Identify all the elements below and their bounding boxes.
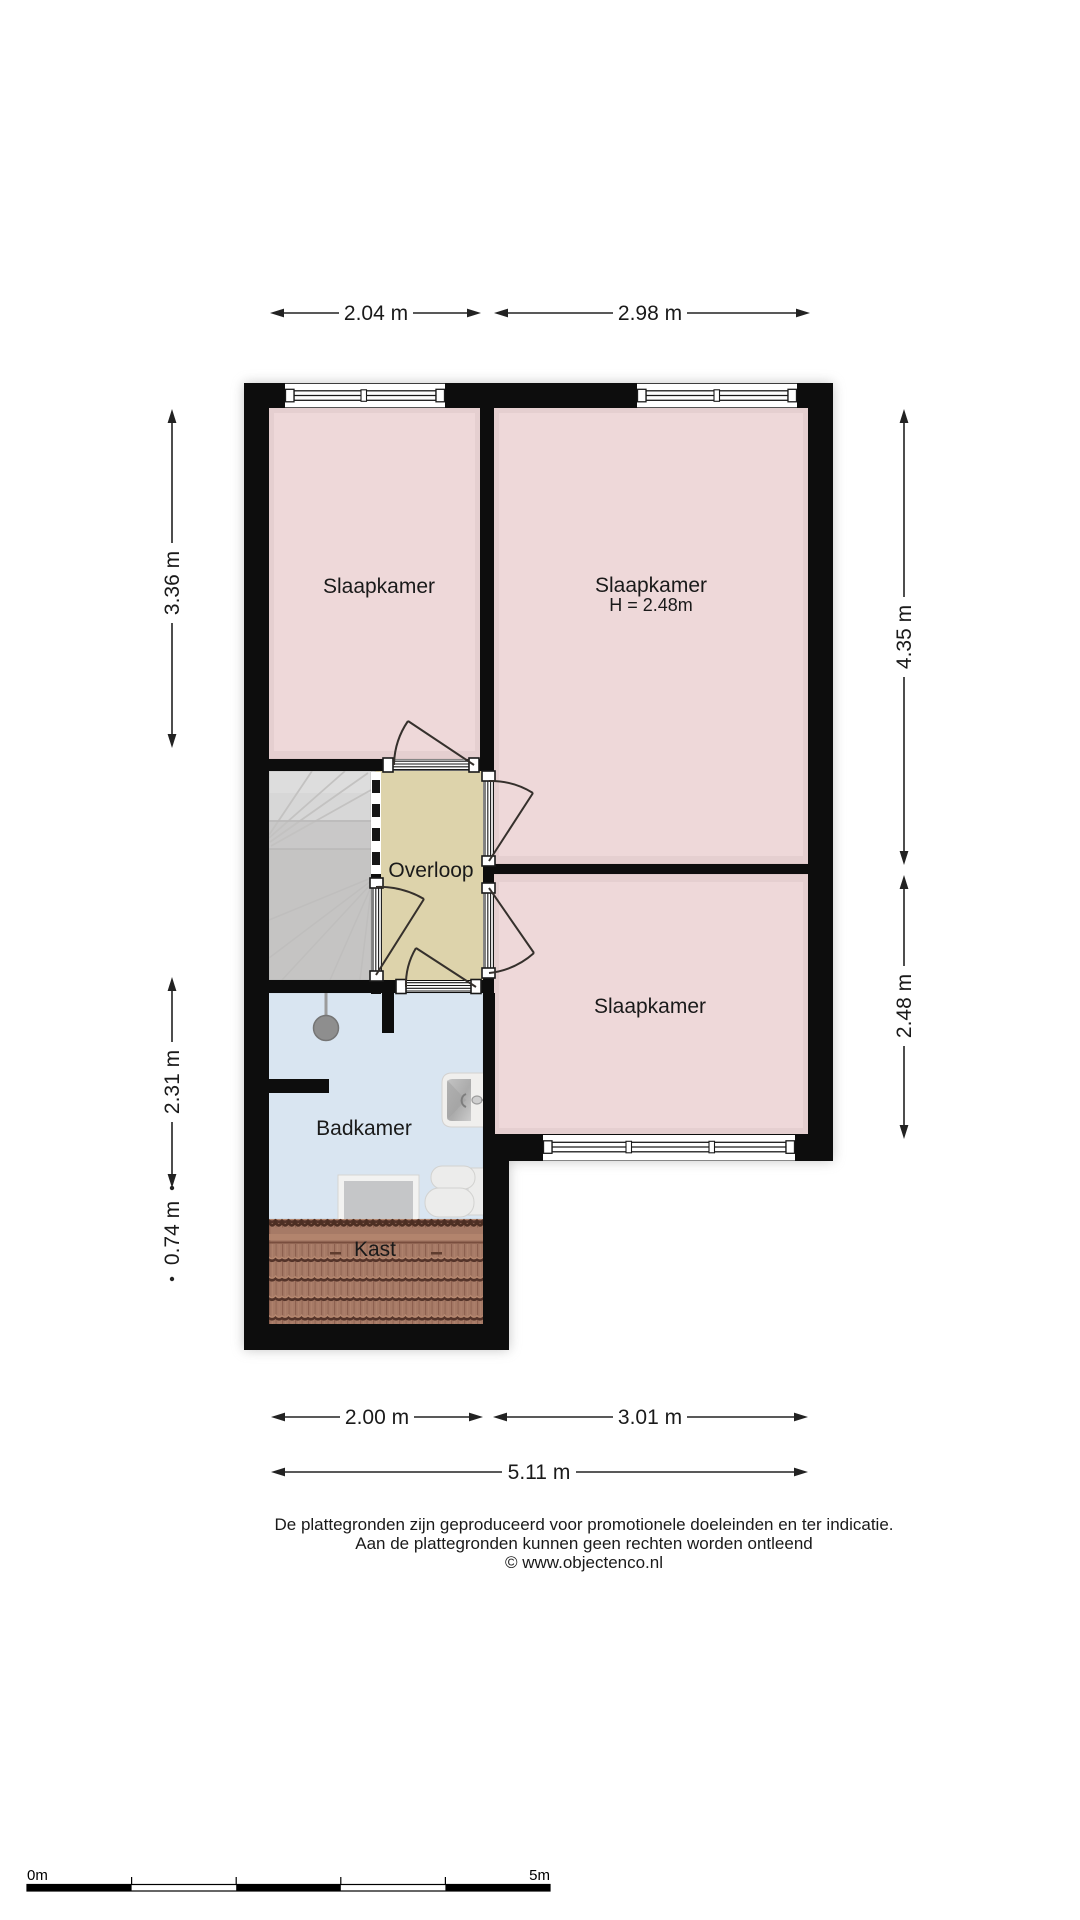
svg-text:Kast: Kast (354, 1238, 396, 1261)
svg-text:0.74 m: 0.74 m (161, 1201, 184, 1265)
svg-text:H = 2.48m: H = 2.48m (609, 595, 693, 615)
svg-text:5m: 5m (529, 1867, 550, 1884)
svg-text:2.48 m: 2.48 m (893, 974, 916, 1038)
svg-text:Badkamer: Badkamer (316, 1117, 412, 1140)
svg-text:2.98 m: 2.98 m (618, 302, 682, 325)
svg-text:Slaapkamer: Slaapkamer (323, 575, 435, 598)
svg-text:Aan de plattegronden kunnen ge: Aan de plattegronden kunnen geen rechten… (355, 1534, 812, 1553)
svg-text:3.36 m: 3.36 m (161, 551, 184, 615)
svg-text:De plattegronden zijn geproduc: De plattegronden zijn geproduceerd voor … (274, 1515, 893, 1534)
svg-text:© www.objectenco.nl: © www.objectenco.nl (505, 1553, 663, 1572)
svg-text:Slaapkamer: Slaapkamer (595, 574, 707, 597)
svg-text:4.35 m: 4.35 m (893, 605, 916, 669)
svg-text:Overloop: Overloop (388, 859, 473, 882)
svg-text:5.11 m: 5.11 m (508, 1461, 571, 1484)
svg-text:Slaapkamer: Slaapkamer (594, 995, 706, 1018)
svg-text:2.00 m: 2.00 m (345, 1406, 409, 1429)
svg-text:2.04 m: 2.04 m (344, 302, 408, 325)
svg-text:3.01 m: 3.01 m (618, 1406, 682, 1429)
svg-text:0m: 0m (27, 1867, 48, 1884)
svg-text:2.31 m: 2.31 m (161, 1050, 184, 1114)
